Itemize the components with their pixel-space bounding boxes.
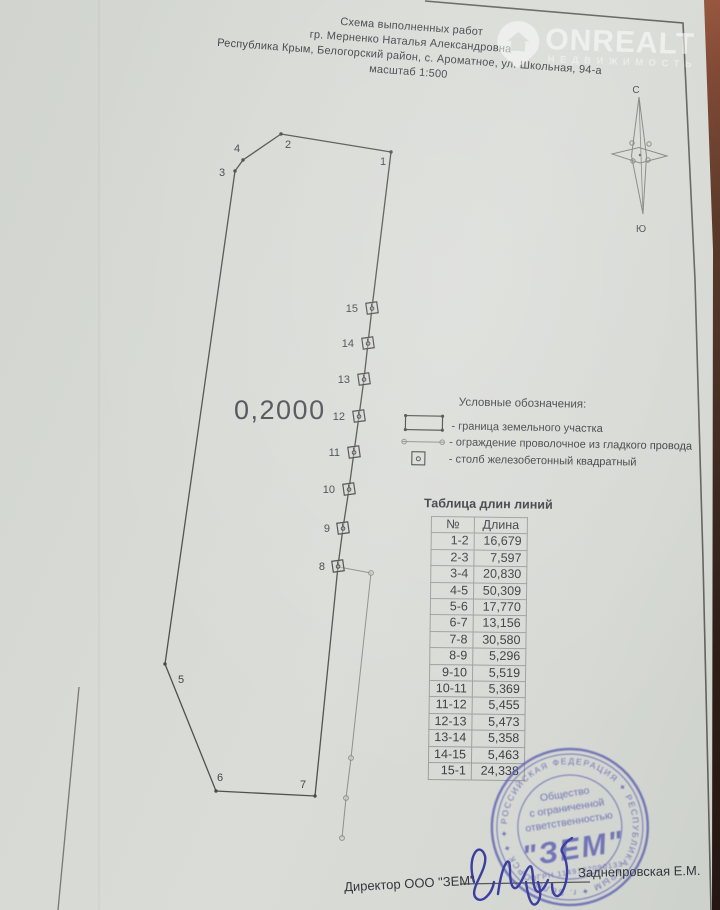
vertex-label: 5 bbox=[178, 674, 184, 686]
boundary-symbol bbox=[404, 414, 444, 432]
concrete-post-symbol bbox=[353, 410, 365, 422]
signature-strokes bbox=[472, 838, 572, 905]
table-row: 12-135,473 bbox=[429, 713, 525, 731]
table-cell: 1-2 bbox=[431, 533, 474, 550]
vertex-dot bbox=[214, 789, 217, 792]
table-header-row: № Длина bbox=[431, 517, 527, 535]
vertex-label: 3 bbox=[219, 167, 225, 179]
table-cell: 6-7 bbox=[430, 615, 473, 632]
vertex-dot bbox=[241, 158, 244, 161]
fence-marker bbox=[349, 756, 354, 761]
table-cell: 11-12 bbox=[429, 697, 472, 714]
onrealt-watermark: ONREALT НЕДВИЖИМОСТЬ bbox=[494, 18, 711, 83]
vertex-dot bbox=[389, 150, 392, 153]
post-label: 10 bbox=[323, 484, 335, 496]
table-row: 6-713,156 bbox=[430, 615, 526, 633]
post-label: 13 bbox=[338, 374, 350, 386]
table-row: 8-95,296 bbox=[430, 648, 526, 666]
table-cell: 5,519 bbox=[472, 665, 525, 682]
table-cell: 5-6 bbox=[430, 599, 473, 616]
table-cell: 13,156 bbox=[473, 615, 526, 632]
post-label: 11 bbox=[329, 447, 340, 459]
table-row: 5-617,770 bbox=[430, 599, 526, 617]
table-cell: 4-5 bbox=[430, 582, 473, 599]
table-cell: 3-4 bbox=[431, 566, 474, 583]
table-row: 11-125,455 bbox=[429, 697, 525, 715]
table-cell: 12-13 bbox=[429, 713, 472, 730]
table-cell: 10-11 bbox=[429, 681, 472, 698]
vertex-dot bbox=[313, 794, 316, 797]
table-cell: 2-3 bbox=[431, 549, 474, 566]
concrete-post-symbol bbox=[332, 560, 344, 572]
table-row: 7-830,580 bbox=[430, 631, 526, 649]
concrete-post-symbol bbox=[362, 337, 374, 349]
table-row: 9-105,519 bbox=[429, 664, 525, 682]
compass-south-label: Ю bbox=[636, 224, 646, 235]
table-cell: 7,597 bbox=[474, 550, 527, 567]
table-row: 4-550,309 bbox=[430, 582, 526, 600]
concrete-post-symbol bbox=[412, 452, 425, 465]
post-label: 12 bbox=[333, 411, 345, 423]
bottom-left-crease bbox=[58, 687, 79, 910]
table-row: 3-420,830 bbox=[431, 566, 527, 584]
vertex-dot bbox=[279, 132, 282, 135]
table-cell: 5,296 bbox=[473, 648, 526, 665]
table-cell: 5,369 bbox=[472, 681, 525, 698]
concrete-post-symbol bbox=[358, 373, 370, 385]
table-cell: 7-8 bbox=[430, 631, 473, 648]
table-cell: 20,830 bbox=[474, 566, 527, 583]
table-cell: 9-10 bbox=[429, 664, 472, 681]
concrete-post-symbol bbox=[348, 446, 360, 458]
vertex-dot bbox=[163, 662, 166, 665]
wire-fence-symbol bbox=[402, 439, 445, 444]
vertex-label: 2 bbox=[285, 139, 291, 151]
concrete-post-symbol bbox=[337, 522, 349, 534]
concrete-post-symbol bbox=[343, 483, 355, 495]
document-page: 124356789101112131415 С Ю Схема выполнен… bbox=[0, 0, 720, 910]
signer-name: Заднепровская Е.М. bbox=[578, 863, 701, 880]
table-cell: 5,473 bbox=[472, 714, 525, 731]
location-pin-house-icon bbox=[494, 18, 542, 70]
vertex-label: 7 bbox=[300, 779, 306, 791]
table-header-number: № bbox=[431, 517, 474, 534]
compass-north-label: С bbox=[632, 85, 639, 96]
vertex-label: 4 bbox=[234, 143, 240, 155]
post-label: 15 bbox=[346, 303, 358, 315]
post-label: 9 bbox=[324, 523, 330, 535]
post-label: 8 bbox=[319, 561, 325, 573]
table-cell: 5,455 bbox=[472, 697, 525, 714]
table-cell: 16,679 bbox=[474, 533, 527, 550]
table-cell: 30,580 bbox=[473, 632, 526, 649]
parcel-boundary bbox=[165, 134, 391, 796]
table-cell: 50,309 bbox=[473, 583, 526, 600]
parcel-plot: 124356789101112131415 bbox=[163, 132, 392, 840]
table-row: 1-216,679 bbox=[431, 533, 527, 551]
table-row: 10-115,369 bbox=[429, 681, 525, 699]
table-cell: 17,770 bbox=[473, 599, 526, 616]
parcel-area-label: 0,2000 bbox=[234, 395, 326, 426]
table-row: 2-37,597 bbox=[431, 549, 527, 567]
concrete-post-symbol bbox=[366, 302, 378, 314]
table-cell: 8-9 bbox=[430, 648, 473, 665]
vertex-label: 1 bbox=[380, 156, 386, 168]
fence-marker bbox=[369, 571, 374, 576]
table-title: Таблица длин линий bbox=[424, 496, 553, 512]
table-cell: 13-14 bbox=[429, 730, 472, 747]
fence-marker bbox=[344, 796, 349, 801]
table-header-length: Длина bbox=[474, 517, 527, 534]
fence-marker bbox=[340, 836, 345, 841]
vertex-dot bbox=[233, 169, 236, 172]
vertex-label: 6 bbox=[217, 772, 223, 784]
compass-rose: С Ю bbox=[612, 85, 667, 235]
post-label: 14 bbox=[342, 338, 354, 350]
